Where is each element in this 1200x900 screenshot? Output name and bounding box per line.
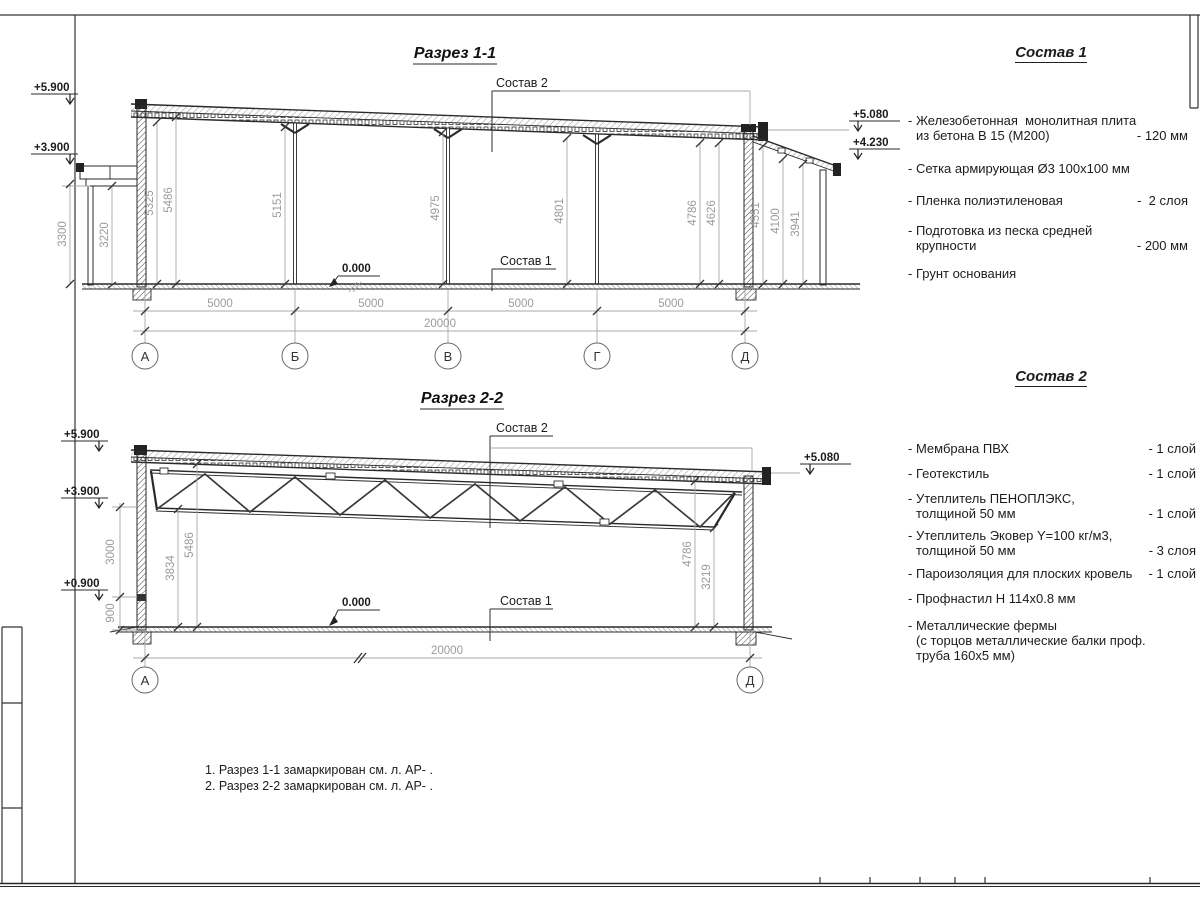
annex-right-wall	[820, 170, 826, 285]
dim-5151: 5151	[272, 192, 284, 218]
item-value: - 3 слоя	[1149, 543, 1196, 558]
item-value: - 1 слой	[1148, 466, 1196, 481]
wall-axis-d	[744, 476, 753, 630]
composition2-item-6: - Профнастил Н 114x0.8 мм	[908, 591, 1198, 606]
section2-title: Разрез 2-2	[421, 390, 503, 407]
dim-4801: 4801	[554, 198, 566, 224]
axis-v: В	[444, 349, 453, 364]
dim-3219: 3219	[701, 564, 713, 590]
dim-5486: 5486	[184, 532, 196, 558]
annex-left-wall	[88, 186, 93, 285]
dim-3834: 3834	[165, 555, 177, 581]
item-value: - 200 мм	[1137, 238, 1188, 253]
axis-a: А	[141, 349, 150, 364]
dim-5486: 5486	[163, 187, 175, 213]
section1-building	[76, 99, 860, 300]
axis-b: Б	[291, 349, 300, 364]
dim-900: 900	[105, 603, 117, 622]
dim-4626: 4626	[706, 200, 718, 226]
dim-5000-2: 5000	[358, 298, 384, 310]
footing-right	[736, 632, 756, 645]
item-text: - Сетка армирующая Ø3 100x100 мм	[908, 161, 1198, 176]
section1-leaders: Состав 2 Состав 1 0.000	[329, 76, 750, 291]
composition2-item-2: - Геотекстиль - 1 слой	[908, 466, 1198, 481]
elevation-5900: +5.900	[64, 429, 100, 441]
section2-leaders: Состав 2 Состав 1 0.000	[329, 421, 752, 641]
elevation-3900: +3.900	[64, 486, 100, 498]
dim-total-20000: 20000	[431, 645, 463, 657]
item-value: - 1 слой	[1148, 506, 1196, 521]
dim-5000-3: 5000	[508, 298, 534, 310]
section2-dimensions: 3000 900 3834 5486 4786 3219 20000	[105, 460, 762, 667]
section1-axes: А Б В Г Д	[132, 343, 758, 369]
dim-5325: 5325	[144, 190, 156, 216]
section2-axes: А Д	[132, 667, 763, 693]
dim-4551: 4551	[750, 202, 762, 228]
item-value: - 120 мм	[1137, 128, 1188, 143]
sostav2-callout: Состав 2	[496, 76, 548, 90]
item-value: - 1 слой	[1148, 441, 1196, 456]
footing-left	[133, 289, 151, 300]
left-stamp-column	[2, 627, 22, 884]
elevation-5080: +5.080	[804, 452, 840, 464]
composition2-item-5: - Пароизоляция для плоских кровель - 1 с…	[908, 566, 1198, 581]
dim-5000-4: 5000	[658, 298, 684, 310]
section1-title: Разрез 1-1	[414, 45, 496, 62]
annex-left-canopy	[80, 166, 137, 179]
item-text: - Утеплитель Эковер Y=100 кг/м3,	[908, 528, 1198, 543]
item-text: - Подготовка из песка средней	[908, 223, 1198, 238]
note-2: 2. Разрез 2-2 замаркирован см. л. АР- .	[205, 778, 433, 794]
composition1-item-4: - Подготовка из песка средней крупности …	[908, 223, 1198, 253]
axis-a: А	[141, 673, 150, 688]
note-1: 1. Разрез 1-1 замаркирован см. л. АР- .	[205, 762, 433, 778]
axis-g: Г	[593, 349, 600, 364]
item-value: - 2 слоя	[1137, 193, 1188, 208]
section1-drawing: Разрез 1-1	[31, 45, 900, 369]
item-text: труба 160x5 мм)	[908, 648, 1198, 663]
dim-4975: 4975	[430, 195, 442, 221]
item-value: - 1 слой	[1148, 566, 1196, 581]
zero-level: 0.000	[342, 597, 371, 609]
elevation-4230: +4.230	[853, 137, 889, 149]
elevation-0900: +0.900	[64, 578, 100, 590]
footing-right	[736, 289, 756, 300]
dim-4786: 4786	[682, 541, 694, 567]
dim-total-20000: 20000	[424, 318, 456, 330]
elevation-5080: +5.080	[853, 109, 889, 121]
composition2-item-1: - Мембрана ПВХ - 1 слой	[908, 441, 1198, 456]
dim-5000-1: 5000	[207, 298, 233, 310]
composition1-item-3: - Пленка полиэтиленовая - 2 слоя	[908, 193, 1198, 208]
composition1-item-5: - Грунт основания	[908, 266, 1198, 281]
item-text: - Железобетонная монолитная плита	[908, 113, 1198, 128]
composition1-title: Состав 1	[905, 44, 1197, 63]
dim-3300: 3300	[57, 221, 69, 247]
drawing-sheet: Разрез 1-1	[0, 0, 1200, 900]
section2-drawing: Разрез 2-2	[61, 390, 851, 693]
composition1-item-2: - Сетка армирующая Ø3 100x100 мм	[908, 161, 1198, 176]
dim-3000: 3000	[105, 539, 117, 565]
axis-d: Д	[746, 673, 755, 688]
footing-left	[133, 632, 151, 644]
wall-axis-a	[137, 452, 146, 630]
dim-3220: 3220	[99, 222, 111, 248]
item-text: - Металлические фермы	[908, 618, 1198, 633]
dim-4786: 4786	[687, 200, 699, 226]
composition2-item-4: - Утеплитель Эковер Y=100 кг/м3, толщино…	[908, 528, 1198, 558]
axis-d: Д	[741, 349, 750, 364]
dim-3941: 3941	[790, 211, 802, 237]
item-text: - Профнастил Н 114x0.8 мм	[908, 591, 1198, 606]
item-text: - Грунт основания	[908, 266, 1198, 281]
zero-level: 0.000	[342, 263, 371, 275]
sostav1-callout: Состав 1	[500, 594, 552, 608]
elevation-3900: +3.900	[34, 142, 70, 154]
section1-dimensions: 3300 3220 5325 5486 5151 4975 4801 4786 …	[57, 113, 807, 343]
dim-4100: 4100	[770, 208, 782, 234]
elevation-5900: +5.900	[34, 82, 70, 94]
item-text: - Утеплитель ПЕНОПЛЭКС,	[908, 491, 1198, 506]
composition2-title: Состав 2	[905, 368, 1197, 387]
composition2-item-3: - Утеплитель ПЕНОПЛЭКС, толщиной 50 мм -…	[908, 491, 1198, 521]
item-text: (с торцов металлические балки проф.	[908, 633, 1198, 648]
sostav1-callout: Состав 1	[500, 254, 552, 268]
sheet-notes: 1. Разрез 1-1 замаркирован см. л. АР- . …	[205, 762, 433, 794]
sostav2-callout: Состав 2	[496, 421, 548, 435]
composition2-item-7: - Металлические фермы (с торцов металлич…	[908, 618, 1198, 663]
composition1-item-1: - Железобетонная монолитная плита из бет…	[908, 113, 1198, 143]
